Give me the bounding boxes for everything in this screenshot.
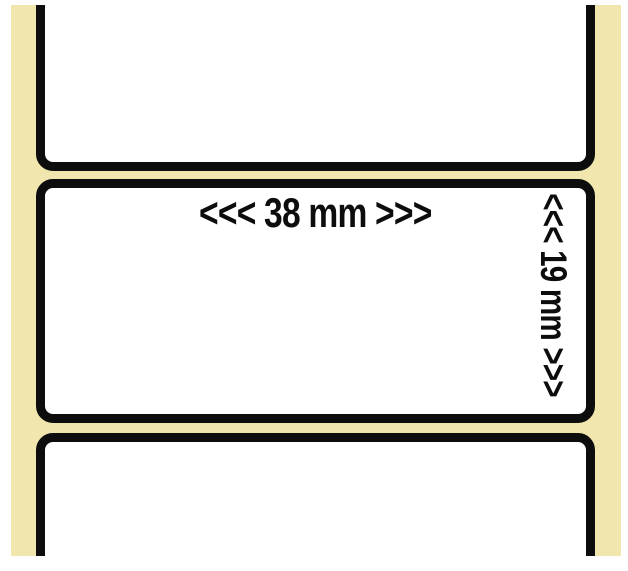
label-top	[36, 5, 595, 171]
label-roll-illustration: <<< 38 mm >>> <<< 19 mm >>>	[0, 0, 628, 571]
label-bottom	[36, 433, 595, 556]
label-width-text: <<< 38 mm >>>	[199, 190, 431, 236]
backing-paper: <<< 38 mm >>> <<< 19 mm >>>	[11, 5, 621, 556]
label-middle: <<< 38 mm >>> <<< 19 mm >>>	[36, 179, 595, 423]
label-width-dimension: <<< 38 mm >>>	[45, 190, 586, 236]
label-height-text: <<< 19 mm >>>	[532, 193, 574, 397]
